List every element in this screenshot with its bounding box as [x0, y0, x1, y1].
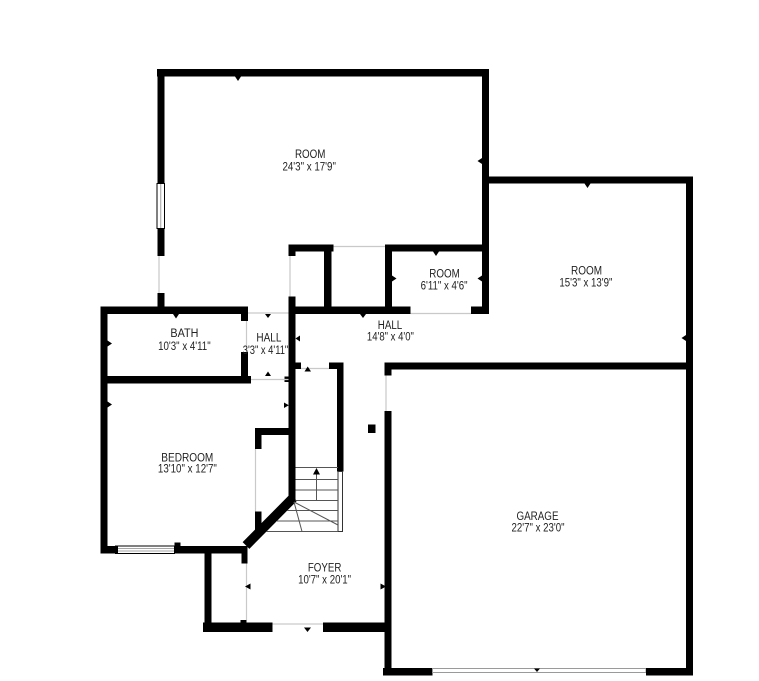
svg-text:13'10" x 12'7": 13'10" x 12'7": [158, 464, 217, 476]
svg-text:GARAGE: GARAGE: [517, 511, 559, 523]
svg-text:6'11" x 4'6": 6'11" x 4'6": [421, 280, 468, 292]
svg-text:10'3" x 4'11": 10'3" x 4'11": [158, 341, 211, 353]
svg-text:ROOM: ROOM: [571, 266, 602, 278]
svg-text:ROOM: ROOM: [295, 149, 326, 161]
svg-text:15'3" x 13'9": 15'3" x 13'9": [559, 278, 612, 290]
svg-text:ROOM: ROOM: [429, 268, 460, 280]
svg-text:24'3" x 17'9": 24'3" x 17'9": [282, 161, 336, 173]
svg-text:10'7" x 20'1": 10'7" x 20'1": [298, 575, 351, 587]
svg-text:BATH: BATH: [170, 328, 198, 340]
svg-text:22'7" x 23'0": 22'7" x 23'0": [512, 522, 565, 534]
svg-text:HALL: HALL: [256, 333, 282, 345]
svg-text:14'8" x 4'0": 14'8" x 4'0": [367, 332, 414, 344]
svg-text:FOYER: FOYER: [308, 562, 342, 574]
svg-text:HALL: HALL: [378, 320, 403, 332]
svg-text:3'3" x 4'11": 3'3" x 4'11": [243, 345, 289, 357]
svg-text:BEDROOM: BEDROOM: [161, 452, 213, 464]
